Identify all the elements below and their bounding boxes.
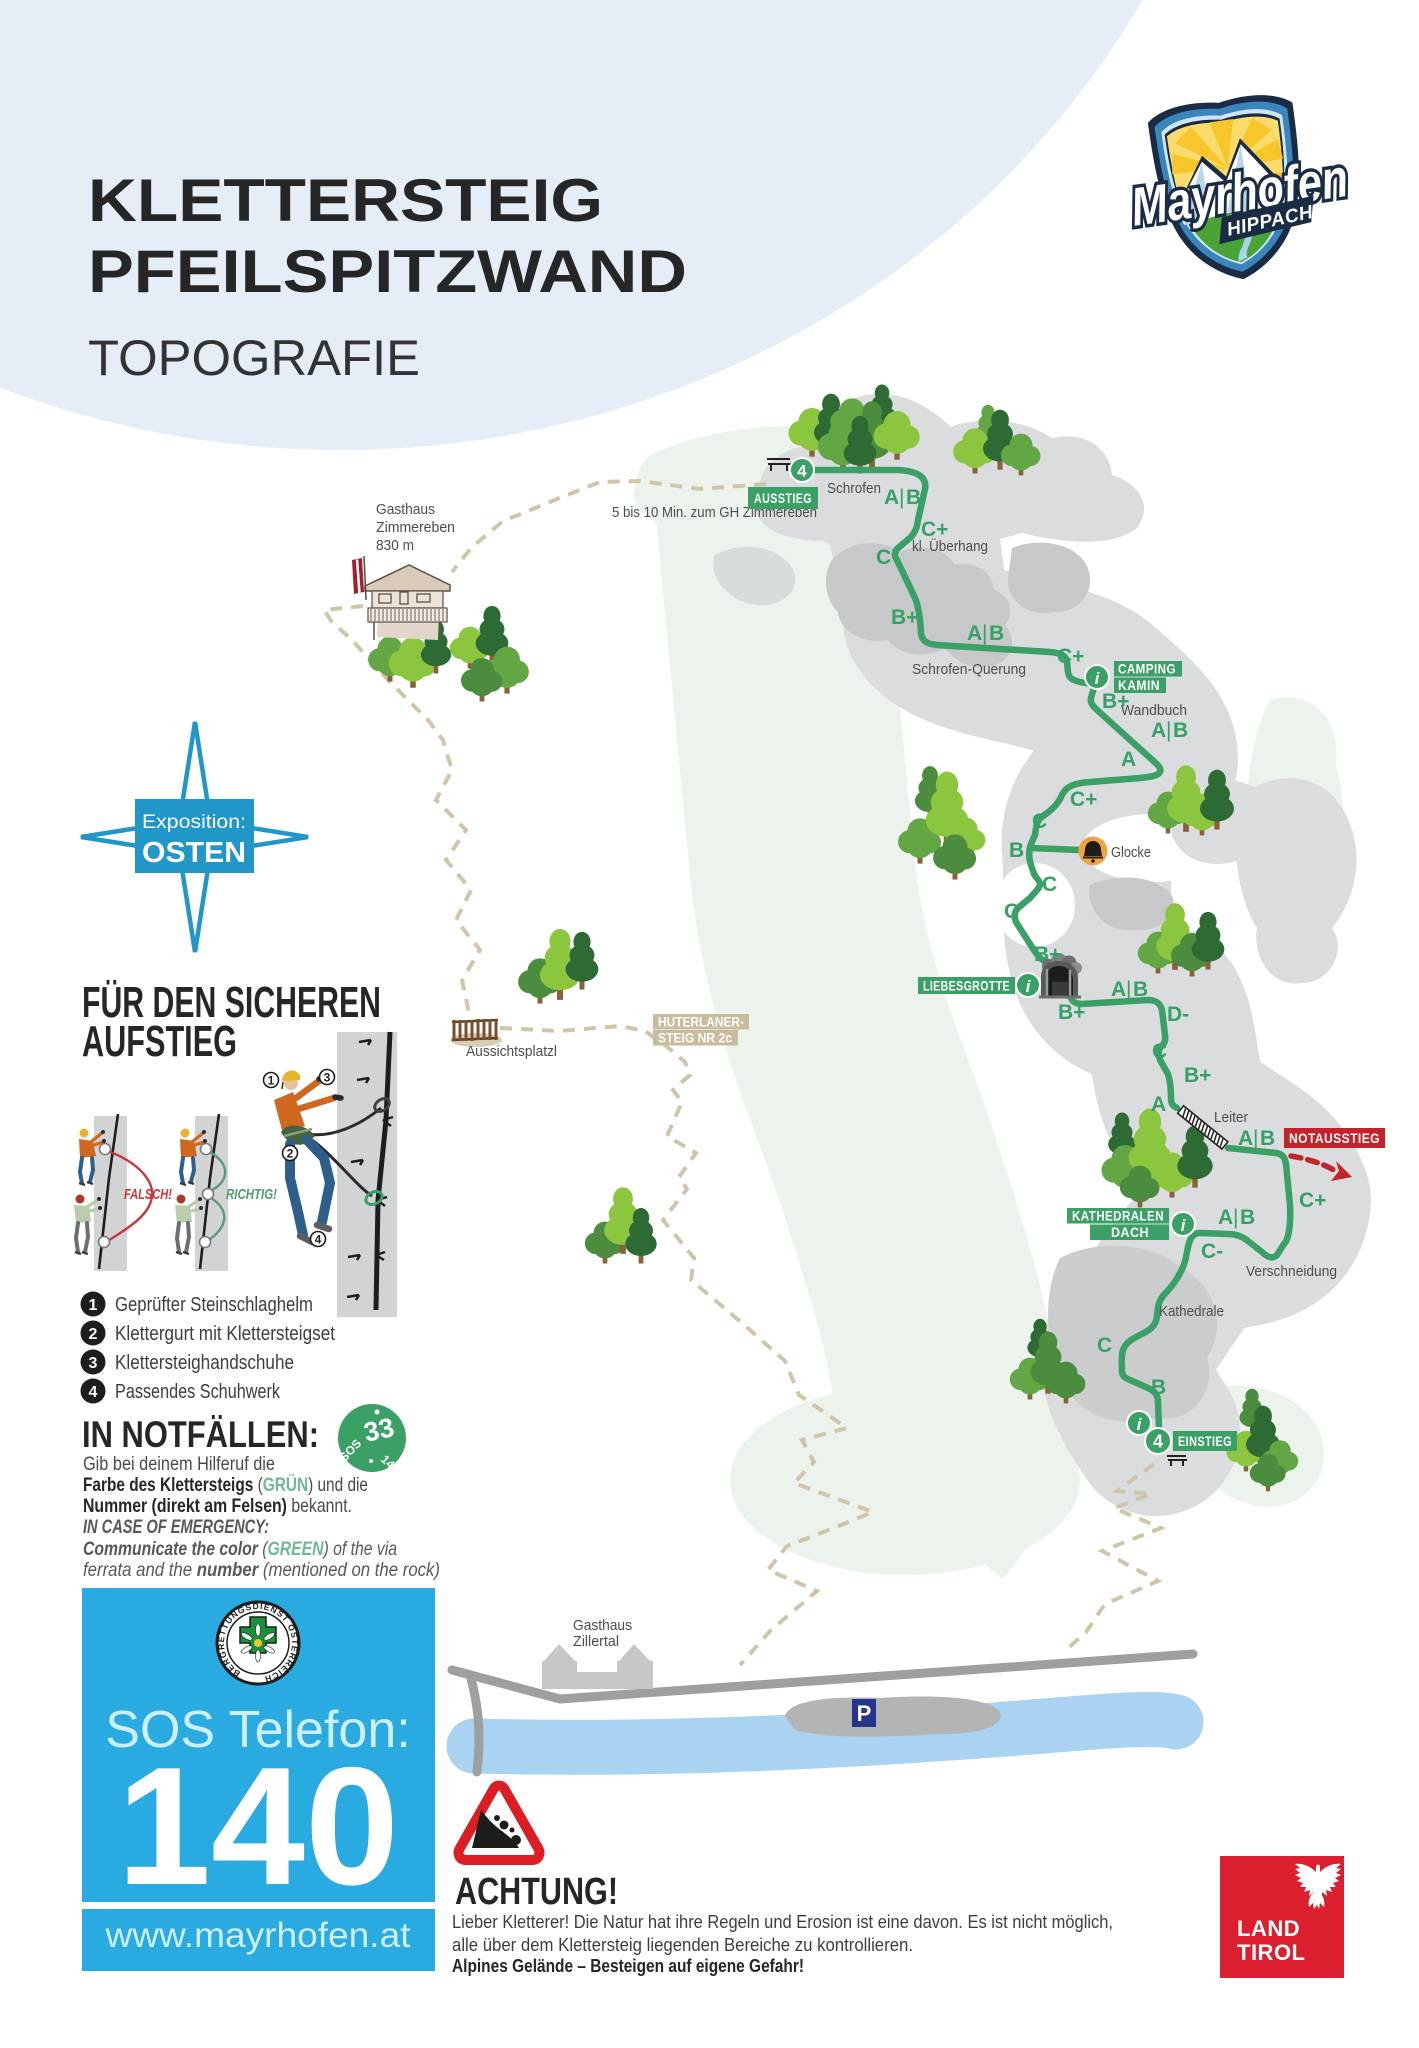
svg-text:1: 1 — [89, 1297, 98, 1314]
svg-text:alle über dem Klettersteig lie: alle über dem Klettersteig liegenden Ber… — [452, 1935, 913, 1955]
svg-text:DACH: DACH — [1111, 1225, 1149, 1240]
svg-text:B+: B+ — [1102, 690, 1129, 713]
svg-text:4: 4 — [315, 1233, 322, 1247]
svg-text:|: | — [1233, 1206, 1238, 1229]
svg-text:Klettersteighandschuhe: Klettersteighandschuhe — [115, 1352, 294, 1374]
svg-text:A: A — [1121, 748, 1136, 771]
svg-text:Aussichtsplatzl: Aussichtsplatzl — [466, 1043, 557, 1060]
svg-text:A: A — [1238, 1127, 1253, 1150]
svg-text:2: 2 — [287, 1147, 294, 1161]
svg-text:B+: B+ — [1058, 1001, 1085, 1024]
svg-text:830 m: 830 m — [376, 537, 414, 554]
svg-text:B: B — [1133, 978, 1148, 1001]
svg-text:Zillertal: Zillertal — [573, 1633, 619, 1650]
svg-text:TIROL: TIROL — [1237, 1940, 1306, 1965]
svg-text:C+: C+ — [921, 518, 948, 541]
svg-text:HUTERLANER-: HUTERLANER- — [658, 1015, 744, 1030]
svg-text:RICHTIG!: RICHTIG! — [226, 1187, 277, 1203]
svg-text:Nummer (direkt am Felsen) beka: Nummer (direkt am Felsen) bekannt. — [83, 1495, 352, 1517]
svg-text:Farbe des Klettersteigs (GRÜN): Farbe des Klettersteigs (GRÜN) und die — [83, 1473, 368, 1496]
svg-text:KATHEDRALEN: KATHEDRALEN — [1072, 1209, 1164, 1224]
svg-text:4: 4 — [89, 1384, 98, 1401]
svg-text:Gasthaus: Gasthaus — [573, 1617, 632, 1634]
svg-text:C: C — [876, 546, 891, 569]
svg-text:IN CASE OF EMERGENCY:: IN CASE OF EMERGENCY: — [83, 1516, 269, 1538]
svg-text:A: A — [1218, 1206, 1233, 1229]
svg-text:FALSCH!: FALSCH! — [124, 1187, 172, 1203]
svg-text:C: C — [1004, 900, 1019, 923]
svg-text:TOPOGRAFIE: TOPOGRAFIE — [88, 330, 420, 386]
svg-text:B+: B+ — [1034, 943, 1061, 966]
svg-text:B: B — [989, 622, 1004, 645]
svg-text:Gasthaus: Gasthaus — [376, 501, 435, 518]
svg-text:C+: C+ — [1299, 1189, 1326, 1212]
svg-text:4: 4 — [1153, 1432, 1163, 1452]
svg-text:C: C — [1032, 810, 1047, 833]
svg-text:www.mayrhofen.at: www.mayrhofen.at — [104, 1916, 410, 1955]
svg-text:C: C — [1097, 1334, 1112, 1357]
svg-text:C: C — [1042, 873, 1057, 896]
svg-text:C+: C+ — [1070, 788, 1097, 811]
svg-text:KLETTERSTEIG: KLETTERSTEIG — [88, 167, 603, 234]
svg-text:Klettergurt mit Klettersteigse: Klettergurt mit Klettersteigset — [115, 1323, 335, 1345]
svg-text:B: B — [1173, 719, 1188, 742]
svg-text:Lieber Kletterer! Die Natur ha: Lieber Kletterer! Die Natur hat ihre Reg… — [452, 1912, 1113, 1932]
svg-text:140: 140 — [117, 1732, 399, 1920]
svg-text:33: 33 — [361, 1412, 397, 1448]
svg-text:B+: B+ — [1184, 1064, 1211, 1087]
svg-text:Leiter: Leiter — [1214, 1109, 1248, 1126]
svg-text:B: B — [906, 486, 921, 509]
svg-text:Verschneidung: Verschneidung — [1246, 1263, 1337, 1280]
svg-text:LAND: LAND — [1237, 1916, 1300, 1941]
svg-text:|: | — [1126, 978, 1131, 1001]
svg-text:C+: C+ — [1057, 645, 1084, 668]
svg-text:Communicate the color (GREEN): Communicate the color (GREEN) of the via — [83, 1538, 397, 1560]
svg-text:P: P — [857, 1701, 872, 1726]
svg-text:Glocke: Glocke — [1111, 844, 1151, 861]
svg-text:IN NOTFÄLLEN:: IN NOTFÄLLEN: — [82, 1414, 319, 1455]
svg-text:1: 1 — [268, 1074, 275, 1088]
svg-text:Kathedrale: Kathedrale — [1159, 1303, 1224, 1320]
svg-text:Passendes Schuhwerk: Passendes Schuhwerk — [115, 1381, 281, 1403]
svg-text:A: A — [1111, 978, 1126, 1001]
svg-text:A: A — [1151, 1093, 1166, 1116]
svg-text:Geprüfter Steinschlaghelm: Geprüfter Steinschlaghelm — [115, 1294, 313, 1316]
svg-text:STEIG NR 2c: STEIG NR 2c — [658, 1031, 732, 1046]
svg-text:PFEILSPITZWAND: PFEILSPITZWAND — [88, 238, 687, 305]
svg-text:Alpines Gelände – Besteigen au: Alpines Gelände – Besteigen auf eigene G… — [452, 1956, 804, 1976]
svg-text:A: A — [967, 622, 982, 645]
svg-text:B: B — [1260, 1127, 1275, 1150]
svg-text:Exposition:: Exposition: — [142, 812, 246, 833]
svg-text:2: 2 — [89, 1326, 98, 1343]
svg-text:Zimmereben: Zimmereben — [376, 519, 455, 536]
svg-text:NOTAUSSTIEG: NOTAUSSTIEG — [1289, 1131, 1380, 1146]
svg-text:D-: D- — [1167, 1003, 1189, 1026]
svg-text:Wandbuch: Wandbuch — [1121, 702, 1187, 719]
svg-text:B: B — [1151, 1376, 1166, 1399]
svg-text:|: | — [899, 486, 904, 509]
svg-text:EINSTIEG: EINSTIEG — [1178, 1434, 1232, 1449]
svg-text:C-: C- — [1201, 1240, 1223, 1263]
svg-text:4: 4 — [797, 462, 807, 481]
svg-text:LIEBESGROTTE: LIEBESGROTTE — [923, 979, 1010, 994]
svg-text:|: | — [1253, 1127, 1258, 1150]
svg-text:3: 3 — [89, 1355, 98, 1372]
svg-text:C: C — [1152, 1040, 1167, 1063]
svg-text:ferrata and the number (mentio: ferrata and the number (mentioned on the… — [83, 1559, 440, 1581]
svg-text:Gib bei deinem Hilferuf die: Gib bei deinem Hilferuf die — [83, 1453, 275, 1475]
svg-text:AUFSTIEG: AUFSTIEG — [82, 1017, 237, 1066]
svg-text:A: A — [1151, 719, 1166, 742]
svg-text:|: | — [982, 622, 987, 645]
svg-text:B: B — [1240, 1206, 1255, 1229]
svg-text:B: B — [1009, 839, 1024, 862]
svg-text:CAMPING: CAMPING — [1118, 662, 1176, 677]
svg-text:AUSSTIEG: AUSSTIEG — [754, 491, 812, 506]
svg-text:OSTEN: OSTEN — [142, 837, 246, 869]
svg-text:Schrofen: Schrofen — [827, 480, 881, 497]
svg-text:Schrofen-Querung: Schrofen-Querung — [912, 661, 1026, 678]
svg-text:3: 3 — [324, 1071, 331, 1085]
svg-text:ACHTUNG!: ACHTUNG! — [455, 1871, 618, 1913]
svg-text:B+: B+ — [891, 606, 918, 629]
svg-text:A: A — [884, 486, 899, 509]
svg-text:|: | — [1166, 719, 1171, 742]
